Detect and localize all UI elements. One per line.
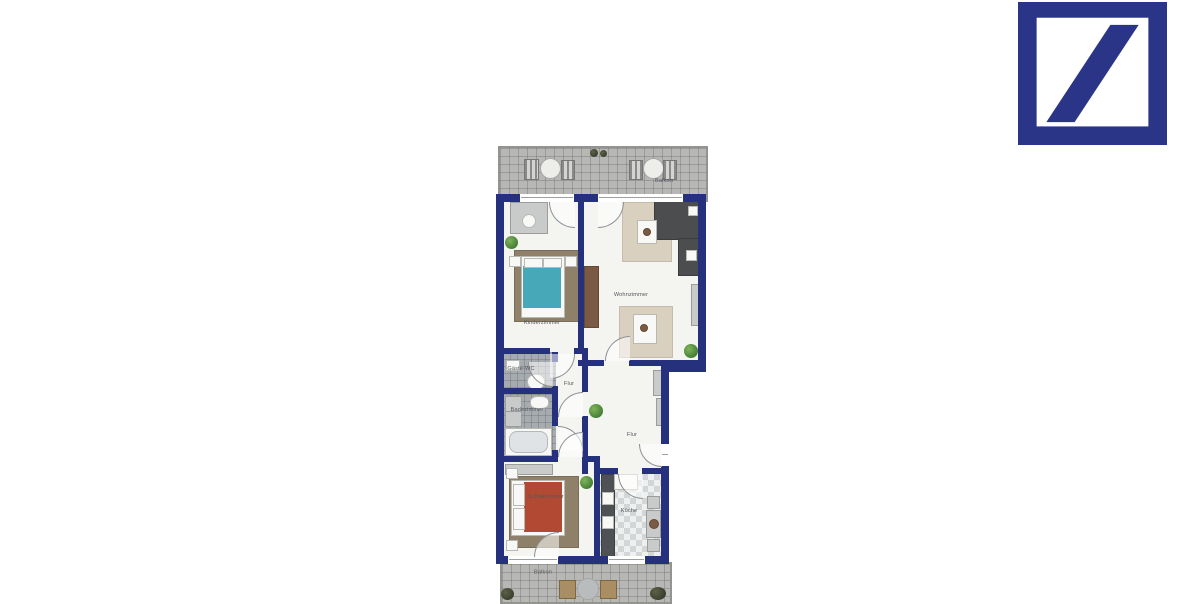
plant-icon <box>580 476 593 489</box>
potted-plant-icon <box>650 587 666 600</box>
balcony-table <box>643 158 664 179</box>
room-label-balkon-bottom: Balkon <box>534 569 552 575</box>
balcony-table <box>577 578 599 600</box>
wall <box>552 394 558 426</box>
room-label-kueche: Küche <box>621 507 638 513</box>
lounge-chair <box>561 160 575 180</box>
plant-icon <box>505 236 518 249</box>
wall <box>578 200 584 352</box>
plant-icon <box>684 344 698 358</box>
plant-icon <box>589 404 603 418</box>
balcony-chair <box>559 580 576 599</box>
wall <box>496 388 558 394</box>
potted-plant-icon <box>501 588 514 600</box>
room-label-schlafzimmer: Schlafzimmer <box>528 493 564 499</box>
sofa-cushion <box>686 250 697 261</box>
wall <box>594 468 618 474</box>
room-label-flur-klein: Flur <box>564 380 574 386</box>
nightstand <box>509 256 521 267</box>
wall <box>558 556 608 564</box>
pillow <box>524 258 543 268</box>
potted-plant-icon <box>600 150 607 157</box>
window <box>608 556 645 564</box>
wall <box>698 194 706 372</box>
desk-chair <box>522 214 536 228</box>
pillow <box>513 484 525 506</box>
room-label-kinderzimmer: Kinderzimmer <box>524 319 560 325</box>
balcony-chair <box>600 580 617 599</box>
pillow <box>513 508 525 530</box>
decor-bowl <box>643 228 651 236</box>
bed-mattress <box>523 266 561 308</box>
kitchen-chair <box>647 496 660 509</box>
wall <box>629 360 704 366</box>
wall <box>645 556 669 564</box>
balcony-table <box>540 158 561 179</box>
kitchen-sink <box>602 492 614 505</box>
floorplan-canvas: Balkon Kinderzimmer Wohnzimmer Gäste-WC … <box>0 0 1200 600</box>
lounge-chair <box>524 159 539 180</box>
pillow <box>543 258 562 268</box>
sofa-cushion <box>688 206 698 216</box>
lounge-chair <box>629 160 643 180</box>
room-label-flur: Flur <box>627 431 637 437</box>
entrance-door-gap <box>661 444 669 466</box>
room-label-badezimmer: Badezimmer <box>511 406 544 412</box>
wall <box>496 348 550 354</box>
wall <box>496 556 508 564</box>
fruit-bowl <box>649 519 659 529</box>
media-wall <box>584 266 599 328</box>
wall <box>661 364 669 444</box>
bathtub-basin <box>509 431 548 453</box>
window <box>520 194 574 202</box>
room-label-gaeste-wc: Gäste-WC <box>507 365 534 371</box>
potted-plant-icon <box>590 149 598 157</box>
wall <box>582 348 588 392</box>
kitchen-chair <box>647 539 660 552</box>
wall <box>642 468 667 474</box>
deutsche-bank-slash-icon <box>1018 2 1167 145</box>
room-label-balkon-top: Balkon <box>655 177 673 183</box>
nightstand <box>565 256 577 267</box>
room-label-wohnzimmer: Wohnzimmer <box>614 291 648 297</box>
wall <box>496 194 504 564</box>
window <box>508 556 558 564</box>
nightstand <box>506 540 518 551</box>
decor-bowl <box>640 324 648 332</box>
washing-machine <box>505 411 522 427</box>
bed-duvet <box>524 482 562 532</box>
wall <box>496 456 558 462</box>
stove <box>602 516 614 529</box>
nightstand <box>506 468 518 479</box>
wall <box>661 466 669 564</box>
window <box>598 194 683 202</box>
